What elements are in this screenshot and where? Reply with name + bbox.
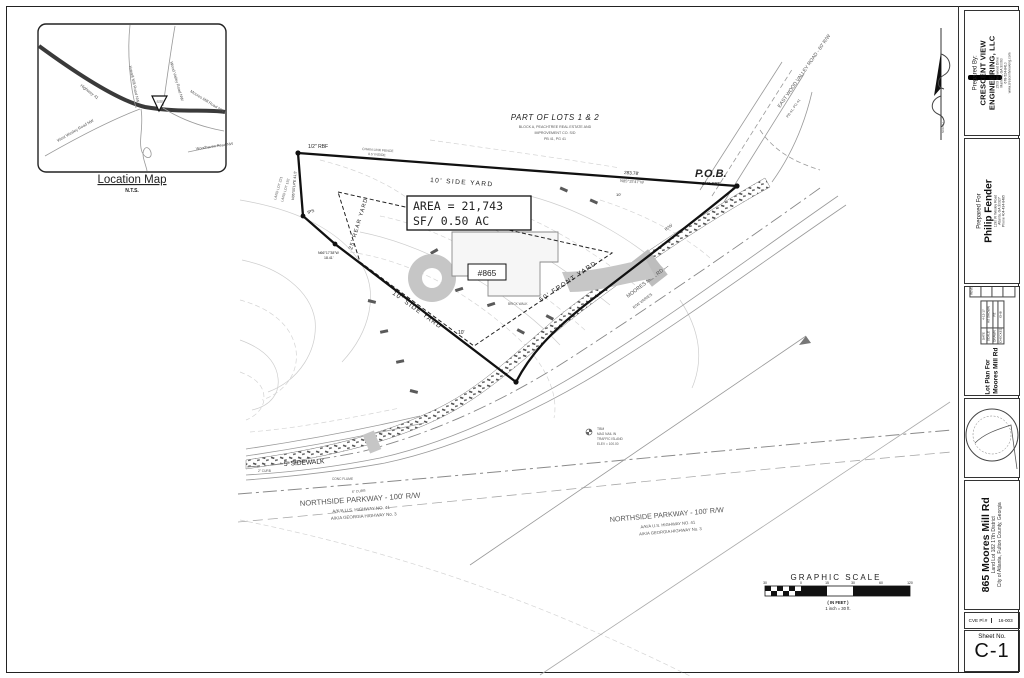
moores-mill-road: MOORES MILL RD — R/W VARIES R/W 5' SIDEW…: [246, 178, 846, 494]
graphic-scale: GRAPHIC SCALE 30 0 15 30 60 120 ( IN FEE…: [763, 573, 913, 611]
scale-ratio: 1 inch = 30 ft.: [825, 606, 850, 611]
scale-label: SCALE: [987, 328, 992, 344]
pob-monument: 1/4" RBF: [702, 181, 722, 186]
drawn-value: PZ: [993, 302, 998, 328]
monument-ips-label: IPS: [307, 208, 315, 215]
checked-value: GHB: [998, 302, 1003, 328]
conc-flume-label: CONC FLUME: [332, 477, 353, 481]
lots-note-l3: PB 41, PG 41: [544, 137, 566, 141]
plan-title-2: 865 Moores Mill Rd: [992, 348, 999, 396]
plan-title-1: Lot Plan For: [985, 348, 992, 396]
area-line-1: AREA = 21,743: [413, 199, 503, 213]
site-marker-label: SITE: [156, 100, 163, 104]
scale-tick-5: 120: [907, 581, 913, 585]
cve-number-strip: CVE Pl.# 16-003: [964, 612, 1020, 629]
rw-label: R/W: [664, 222, 675, 232]
sheet-number-block: Sheet No. C-1: [964, 630, 1020, 672]
drawn-label: DRAWN: [993, 328, 998, 344]
tbm-l2: MAG NAIL IN: [597, 432, 617, 436]
fence-note-2: 0.5' INSIDE: [368, 152, 387, 157]
north-line-distance: 283.78': [624, 170, 639, 176]
checked-label: CHECKED: [998, 328, 1003, 344]
company-website: www.crescentvieweng.com: [1008, 36, 1012, 110]
tbm-l1: TBM: [597, 427, 604, 431]
scale-value: AS SHOWN: [987, 302, 992, 328]
pob-label: P.O.B.: [695, 168, 727, 180]
sheet-number: C-1: [965, 640, 1019, 663]
north-arrow-icon: NORTH: [932, 28, 949, 140]
scale-tick-4: 60: [879, 581, 883, 585]
flow-arrow-icon: [799, 336, 811, 345]
north-label: NORTH: [941, 122, 945, 133]
curb6-label: 6" CURB: [352, 489, 367, 494]
tbm-l3: TRAFFIC ISLAND: [597, 437, 624, 441]
jog-bearing: N66°17'38"W: [318, 251, 340, 255]
north-line-bearing: N85°15'47"W: [620, 178, 644, 185]
lots-note: PART OF LOTS 1 & 2 BLOCK A, PEACHTREE RE…: [511, 113, 600, 141]
seal-signature: [975, 425, 1017, 469]
date-label: DATE: [981, 328, 986, 344]
date-value: 4-12-17: [981, 302, 986, 328]
east-wood-valley-ref: PB 41, PG 41: [786, 98, 802, 118]
setback-side-top: 10' SIDE YARD: [430, 177, 494, 188]
engineer-seal: [965, 399, 1019, 477]
curb-label: 2" CURB: [258, 469, 271, 473]
lots-note-l2: IMPROVEMENT CO. S/D: [534, 131, 575, 135]
sidewalk-label: 5' SIDEWALK: [284, 458, 326, 468]
house-number: #865: [478, 268, 497, 278]
scale-feet: ( IN FEET ): [827, 600, 849, 605]
project-block: 865 Moores Mill Rd Land Lot 182 17th Dis…: [964, 480, 1020, 610]
site-plan-drawing: SITE Highway 41 Howell Mill Road NW Wood…: [0, 0, 1024, 678]
revisions-box: REVISIONS: [969, 286, 1015, 298]
prepared-by-block: Prepared By: CRESCENT VIEW ENGINEERING, …: [964, 10, 1020, 136]
cve-label: CVE Pl.#: [965, 618, 992, 623]
scale-tick-0: 30: [763, 581, 767, 585]
location-map-nts: N.T.S.: [125, 188, 139, 194]
tbm-note: TBM MAG NAIL IN TRAFFIC ISLAND ELEV = 10…: [586, 427, 624, 446]
circular-driveway: [408, 254, 456, 302]
boundary-north: [298, 153, 737, 186]
location-map: SITE Highway 41 Howell Mill Road NW Wood…: [38, 24, 234, 194]
client-phone: Phone 404-434-8485: [1003, 179, 1007, 242]
northside-parkway-label-1: NORTHSIDE PARKWAY - 100' R/W: [300, 491, 422, 508]
graphic-scale-title: GRAPHIC SCALE: [791, 573, 882, 582]
lots-note-l1: BLOCK A, PEACHTREE REAL ESTATE AND: [519, 125, 592, 129]
engineer-seal-block: [964, 398, 1020, 478]
west-line-bearing: N05°55'14"E 41.5': [291, 170, 298, 200]
setback-dim-10b: 10': [616, 192, 621, 197]
plan-title-block: Lot Plan For 865 Moores Mill Rd DATE4-12…: [964, 286, 1020, 396]
location-map-title: Location Map: [97, 174, 166, 186]
project-sub-2: City of Atlanta, Fulton County, Georgia: [998, 497, 1004, 592]
cve-value: 16-003: [992, 618, 1019, 623]
drawing-info-table: DATE4-12-17 SCALEAS SHOWN DRAWNPZ CHECKE…: [980, 301, 1003, 345]
scale-tick-1: 0: [800, 581, 802, 585]
prepared-for-block: Prepared For Philip Fender 1190 W Wesley…: [964, 138, 1020, 284]
east-wood-valley-label: EAST WOOD VALLEY ROAD - 60' R/W: [777, 33, 833, 109]
scale-tick-2: 15: [825, 581, 829, 585]
scale-tick-3: 30: [851, 581, 855, 585]
jog-distance: 18.41': [324, 256, 334, 260]
sheet-number-label: Sheet No.: [965, 633, 1019, 640]
northside-parkway: NORTHSIDE PARKWAY - 100' R/W A/K/A U.S. …: [238, 336, 952, 675]
plan-sheet: SITE Highway 41 Howell Mill Road NW Wood…: [0, 0, 1024, 678]
lots-note-title: PART OF LOTS 1 & 2: [511, 113, 600, 122]
setback-dim-10a: 10': [458, 330, 465, 336]
tbm-l4: ELEV = 100.00: [597, 442, 619, 446]
monument-rbf-label: 1/2" RBF: [308, 144, 328, 150]
brick-walk-label: BRICK WALK: [508, 302, 528, 306]
area-line-2: SF/ 0.50 AC: [413, 214, 489, 228]
setback-rear: 25' REAR YARD: [348, 197, 370, 250]
company-name-1: CRESCENT VIEW: [979, 36, 988, 110]
revisions-label: REVISIONS: [970, 286, 981, 297]
